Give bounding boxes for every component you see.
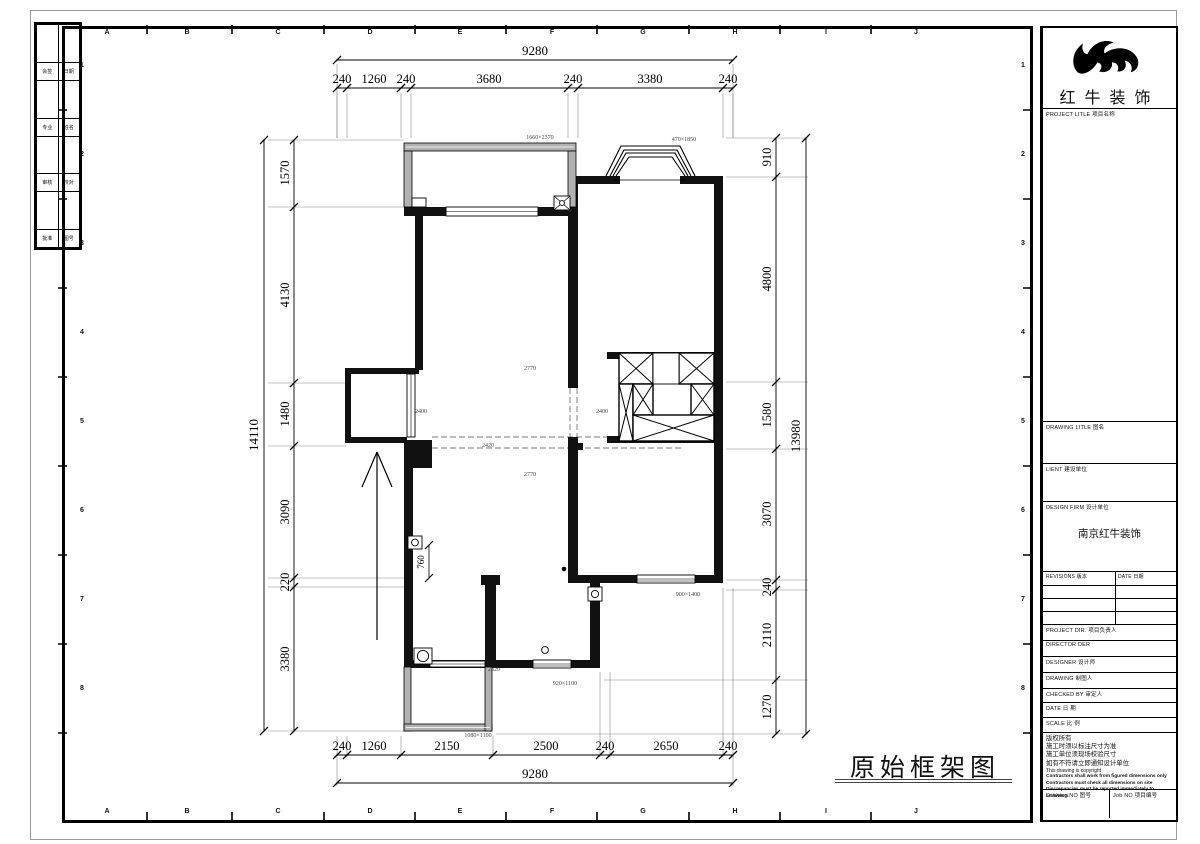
dim-left-2: 4130 — [278, 283, 292, 308]
drawing-title-label: DRAWING LITLE 图名 — [1046, 423, 1104, 431]
dim-top-2: 1260 — [362, 72, 387, 86]
revision-date-label: DATE 日期 — [1118, 573, 1144, 580]
ann-beam-3: 2400 — [415, 409, 427, 415]
ann-beam-4: 2400 — [596, 409, 608, 415]
note-en-bold-1: Contractors shall work from figured dime… — [1046, 774, 1173, 780]
dim-bot-4: 2500 — [534, 739, 559, 753]
drawing-row: DRAWING 制图人 — [1043, 673, 1176, 689]
scale-row: SCALE 比 例 — [1043, 718, 1176, 733]
dim-right-2: 4800 — [760, 267, 774, 292]
dim-right-4: 3070 — [760, 502, 774, 527]
dim-bot-2: 1260 — [362, 739, 387, 753]
director-label: DIRECTOR DER — [1046, 642, 1090, 648]
ann-sill: 2320 — [488, 667, 500, 673]
date-label: DATE 日 期 — [1046, 704, 1076, 712]
checked-by-row: CHECKED BY 审定人 — [1043, 689, 1176, 703]
title-underline-1 — [835, 779, 1012, 780]
company-name: 红牛装饰 — [1043, 84, 1176, 108]
drawing-title-box: DRAWING LITLE 图名 — [1043, 422, 1176, 464]
dim-bot-1: 240 — [333, 739, 352, 753]
dim-top-3: 240 — [397, 72, 416, 86]
client-box: LIENT 建设单位 — [1043, 464, 1176, 502]
client-label: LIENT 建设单位 — [1046, 465, 1087, 473]
dim-top-7: 240 — [719, 72, 738, 86]
point-marker — [562, 567, 566, 571]
bull-logo-icon — [1065, 34, 1155, 80]
project-dir-label: PROJECT DIR. 项目负责人 — [1046, 626, 1117, 634]
dim-top-6: 3380 — [638, 72, 663, 86]
revisions-header: REVISIONS 版本 DATE 日期 — [1043, 572, 1176, 586]
door-width-dim: 760 — [416, 555, 426, 569]
drawing-number-box: Drawing NO 图号 Job NO 项目编号 — [1043, 790, 1176, 818]
ann-window-right: 900×1400 — [676, 592, 700, 598]
designer-row: DESIGNER 设计师 — [1043, 657, 1176, 673]
project-title-label: PROJECT LITLE 项目名称 — [1046, 110, 1115, 118]
drawing-no-label: Drawing NO 图号 — [1046, 791, 1091, 799]
dim-right-1: 910 — [760, 148, 774, 167]
drawing-label: DRAWING 制图人 — [1046, 674, 1093, 682]
dim-left-1: 1570 — [278, 161, 292, 186]
column-solid — [405, 440, 432, 468]
dim-right-overall: 13980 — [788, 420, 803, 453]
dim-right-3: 1580 — [760, 403, 774, 428]
flue-symbol — [554, 196, 570, 210]
door-dim — [425, 541, 433, 582]
project-title-box: PROJECT LITLE 项目名称 — [1043, 109, 1176, 422]
checked-by-label: CHECKED BY 审定人 — [1046, 690, 1103, 698]
dim-bot-3: 2150 — [435, 739, 460, 753]
title-underline-2 — [835, 782, 1012, 783]
note-cn-4: 如有不符请立即通知设计单位 — [1046, 760, 1173, 768]
dim-left-overall: 14110 — [246, 419, 261, 451]
dim-top-5: 240 — [564, 72, 583, 86]
dim-left-5: 220 — [278, 573, 292, 592]
revision-row — [1043, 612, 1176, 625]
revision-row — [1043, 599, 1176, 612]
dim-bot-5: 240 — [596, 739, 615, 753]
dim-bottom-overall: 9280 — [522, 766, 548, 781]
dim-left-6: 3380 — [278, 647, 292, 672]
ann-beam-2: 2770 — [524, 472, 536, 478]
dim-top-4: 3680 — [477, 72, 502, 86]
ann-beam-5: 2420 — [482, 443, 494, 449]
design-firm-box: DESIGN FIRM 设计单位 南京红牛装饰 — [1043, 502, 1176, 572]
dim-right-6: 2110 — [760, 623, 774, 648]
dimension-ticks — [260, 56, 810, 787]
design-firm-value: 南京红牛装饰 — [1043, 526, 1176, 541]
ann-window-mid: 920×1100 — [553, 681, 577, 687]
dim-left-4: 3090 — [278, 500, 292, 525]
dim-right-7: 1270 — [760, 695, 774, 720]
revision-row — [1043, 586, 1176, 599]
dim-left-3: 1480 — [278, 402, 292, 427]
floor-drain — [542, 647, 549, 654]
scale-label: SCALE 比 例 — [1046, 719, 1080, 727]
notes-box: 版权所有 施工时须以标注尺寸为准 施工单位须现场校验尺寸 如有不符请立即通知设计… — [1043, 733, 1176, 790]
ann-window-top: 1660×2370 — [526, 135, 553, 141]
ann-bay-window: 470×1850 — [672, 137, 696, 143]
dim-top-overall: 9280 — [522, 43, 548, 58]
shaft-boxes — [619, 353, 714, 441]
title-block: 红牛装饰 PROJECT LITLE 项目名称 DRAWING LITLE 图名… — [1040, 26, 1178, 822]
dim-top-1: 240 — [333, 72, 352, 86]
project-dir-row: PROJECT DIR. 项目负责人 — [1043, 625, 1176, 641]
entrance-arrow — [362, 452, 392, 640]
note-cn-1: 版权所有 — [1046, 735, 1173, 743]
date-row: DATE 日 期 — [1043, 703, 1176, 718]
ann-beam-1: 2770 — [524, 366, 536, 372]
logo-box: 红牛装饰 — [1043, 28, 1176, 109]
bay-window — [606, 146, 695, 180]
dim-bot-7: 240 — [719, 739, 738, 753]
design-firm-label: DESIGN FIRM 设计单位 — [1046, 503, 1109, 511]
job-no-label: Job NO 项目编号 — [1113, 791, 1157, 799]
dim-bot-6: 2650 — [654, 739, 679, 753]
designer-label: DESIGNER 设计师 — [1046, 658, 1095, 666]
number-divider — [1109, 790, 1110, 818]
drawing-sheet: { "sheet": { "drawing_title": "原始框架图", "… — [0, 0, 1200, 844]
director-row: DIRECTOR DER — [1043, 641, 1176, 657]
dim-right-5: 240 — [760, 578, 774, 597]
floor-plan-canvas: 9280 240 1260 240 3680 240 3380 240 240 … — [0, 0, 1200, 844]
note-cn-3: 施工单位须现场校验尺寸 — [1046, 751, 1173, 759]
revisions-label: REVISIONS 版本 — [1046, 573, 1087, 580]
ann-window-balcony: 1080×1100 — [464, 733, 491, 739]
